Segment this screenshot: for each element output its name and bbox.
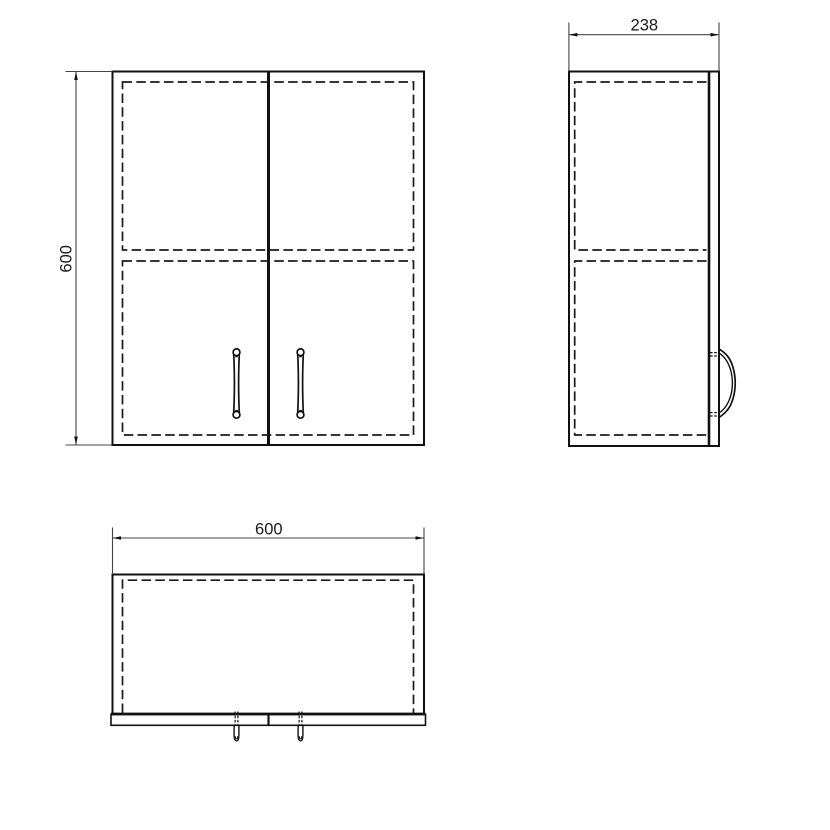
svg-text:600: 600 [57, 245, 75, 273]
svg-text:600: 600 [255, 521, 283, 539]
svg-text:238: 238 [631, 17, 659, 35]
